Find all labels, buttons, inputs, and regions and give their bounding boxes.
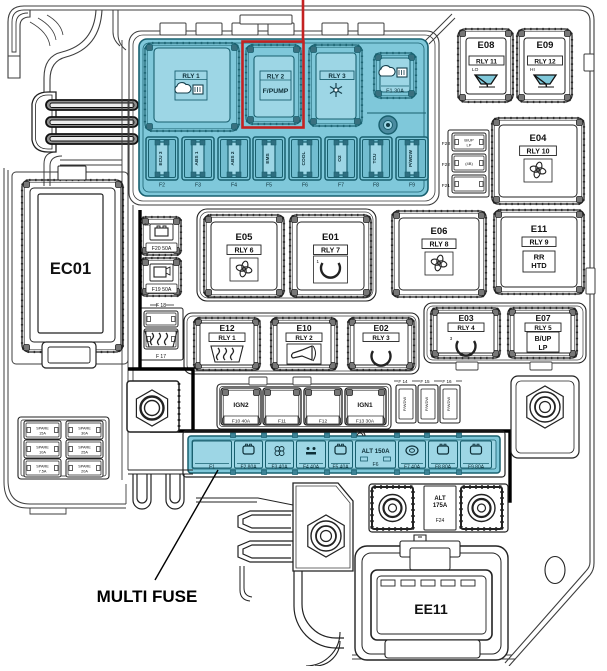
svg-text:F7: F7 (338, 183, 344, 189)
svg-text:F19 50A: F19 50A (152, 287, 172, 293)
svg-text:F5: F5 (266, 183, 272, 189)
svg-text:SPARE: SPARE (36, 465, 49, 469)
svg-text:F 17: F 17 (156, 354, 166, 360)
svg-text:RLY 4: RLY 4 (457, 325, 475, 332)
svg-text:LP: LP (539, 345, 548, 352)
svg-text:F24: F24 (436, 518, 445, 524)
svg-text:F5 40A: F5 40A (332, 465, 349, 471)
svg-text:EE11: EE11 (414, 601, 448, 617)
svg-text:SPARE: SPARE (36, 446, 49, 450)
svg-text:RLY 5: RLY 5 (534, 325, 552, 332)
svg-text:F13 30A: F13 30A (356, 419, 375, 425)
svg-text:RLY 2: RLY 2 (295, 335, 313, 342)
svg-text:E05: E05 (236, 232, 254, 243)
svg-text:F 16: F 16 (442, 379, 452, 384)
svg-text:SPARE: SPARE (78, 427, 91, 431)
svg-text:F11: F11 (278, 419, 286, 425)
svg-text:HI: HI (530, 67, 535, 73)
svg-text:F 15: F 15 (420, 379, 430, 384)
svg-text:F 14: F 14 (398, 379, 408, 384)
svg-text:IGN2: IGN2 (233, 402, 249, 409)
svg-text:RLY 2: RLY 2 (267, 73, 285, 80)
svg-text:E12: E12 (219, 323, 234, 333)
svg-text:P/WDW: P/WDW (402, 397, 407, 411)
svg-text:F8 80A: F8 80A (435, 465, 452, 471)
svg-text:RLY 6: RLY 6 (234, 248, 253, 255)
svg-text:175A: 175A (433, 503, 448, 509)
svg-text:ABS 1: ABS 1 (194, 151, 200, 165)
svg-text:F20 50A: F20 50A (152, 246, 172, 252)
svg-text:RLY 3: RLY 3 (328, 73, 346, 80)
svg-text:IGN1: IGN1 (357, 402, 373, 409)
svg-text:HTD: HTD (531, 261, 547, 270)
svg-text:P/WDW: P/WDW (424, 397, 429, 411)
svg-text:RLY 10: RLY 10 (527, 149, 550, 156)
svg-text:ABS 2: ABS 2 (230, 151, 236, 165)
svg-text:MULTI FUSE: MULTI FUSE (97, 587, 198, 606)
svg-text:RLY 1: RLY 1 (218, 335, 236, 342)
svg-text:F10 40A: F10 40A (232, 419, 251, 425)
svg-text:RLY 8: RLY 8 (429, 242, 448, 249)
svg-text:P/WDW: P/WDW (446, 397, 451, 411)
svg-text:F6: F6 (302, 183, 308, 189)
svg-text:E01: E01 (322, 232, 340, 243)
svg-text:F4 40A: F4 40A (303, 465, 320, 471)
svg-text:10A: 10A (39, 451, 46, 455)
svg-text:ECU 3: ECU 3 (158, 151, 164, 165)
svg-text:(4B): (4B) (465, 161, 473, 166)
svg-text:ALT 150A: ALT 150A (361, 448, 390, 455)
svg-text:E04: E04 (530, 133, 548, 144)
svg-text:E08: E08 (478, 40, 495, 51)
svg-text:F4: F4 (231, 183, 237, 189)
svg-text:E02: E02 (373, 323, 388, 333)
svg-text:F1 30A: F1 30A (386, 89, 404, 95)
svg-text:ALT: ALT (434, 496, 446, 502)
svg-text:F7 40A: F7 40A (404, 465, 421, 471)
svg-text:F2: F2 (159, 183, 165, 189)
svg-text:E11: E11 (531, 224, 548, 235)
svg-text:RLY 7: RLY 7 (321, 248, 340, 255)
svg-text:P/WDW: P/WDW (408, 150, 414, 168)
svg-text:EMS: EMS (265, 153, 271, 164)
svg-text:E09: E09 (537, 40, 554, 51)
svg-text:E07: E07 (535, 313, 550, 323)
svg-text:E06: E06 (431, 226, 448, 237)
svg-text:E10: E10 (296, 323, 311, 333)
svg-text:LP: LP (467, 143, 472, 148)
svg-text:F3 40A: F3 40A (271, 465, 288, 471)
svg-text:B/UP: B/UP (535, 336, 552, 343)
svg-text:7.5A: 7.5A (39, 470, 47, 474)
svg-text:F9 80A: F9 80A (468, 465, 485, 471)
svg-text:TCU: TCU (372, 153, 378, 163)
svg-text:15A: 15A (39, 432, 46, 436)
svg-text:F8: F8 (373, 183, 379, 189)
svg-text:EC01: EC01 (50, 260, 91, 278)
svg-text:F22: F22 (442, 162, 451, 168)
svg-text:SPARE: SPARE (78, 446, 91, 450)
svg-text:F/PUMP: F/PUMP (263, 88, 289, 95)
svg-text:RLY 11: RLY 11 (476, 58, 497, 65)
svg-text:RLY 1: RLY 1 (182, 73, 200, 80)
svg-text:F6: F6 (372, 462, 378, 468)
svg-text:COOL: COOL (301, 152, 307, 166)
svg-text:RLY 3: RLY 3 (372, 335, 390, 342)
svg-text:F23: F23 (442, 141, 451, 147)
svg-text:LO: LO (472, 67, 479, 73)
svg-text:RLY 12: RLY 12 (534, 58, 556, 65)
svg-text:F9: F9 (409, 183, 415, 189)
svg-text:25A: 25A (81, 451, 88, 455)
svg-text:F2 80A: F2 80A (240, 465, 257, 471)
svg-text:SPARE: SPARE (78, 465, 91, 469)
svg-text:30A: 30A (81, 432, 88, 436)
svg-text:F 18: F 18 (156, 303, 166, 309)
svg-text:RLY 9: RLY 9 (529, 240, 548, 247)
svg-text:F12: F12 (319, 419, 328, 425)
svg-text:F3: F3 (195, 183, 201, 189)
svg-text:F1: F1 (209, 465, 215, 471)
svg-text:E03: E03 (458, 313, 473, 323)
svg-text:O2: O2 (337, 155, 343, 162)
svg-text:20A: 20A (81, 470, 88, 474)
svg-text:F21: F21 (442, 183, 451, 189)
svg-text:SPARE: SPARE (36, 427, 49, 431)
